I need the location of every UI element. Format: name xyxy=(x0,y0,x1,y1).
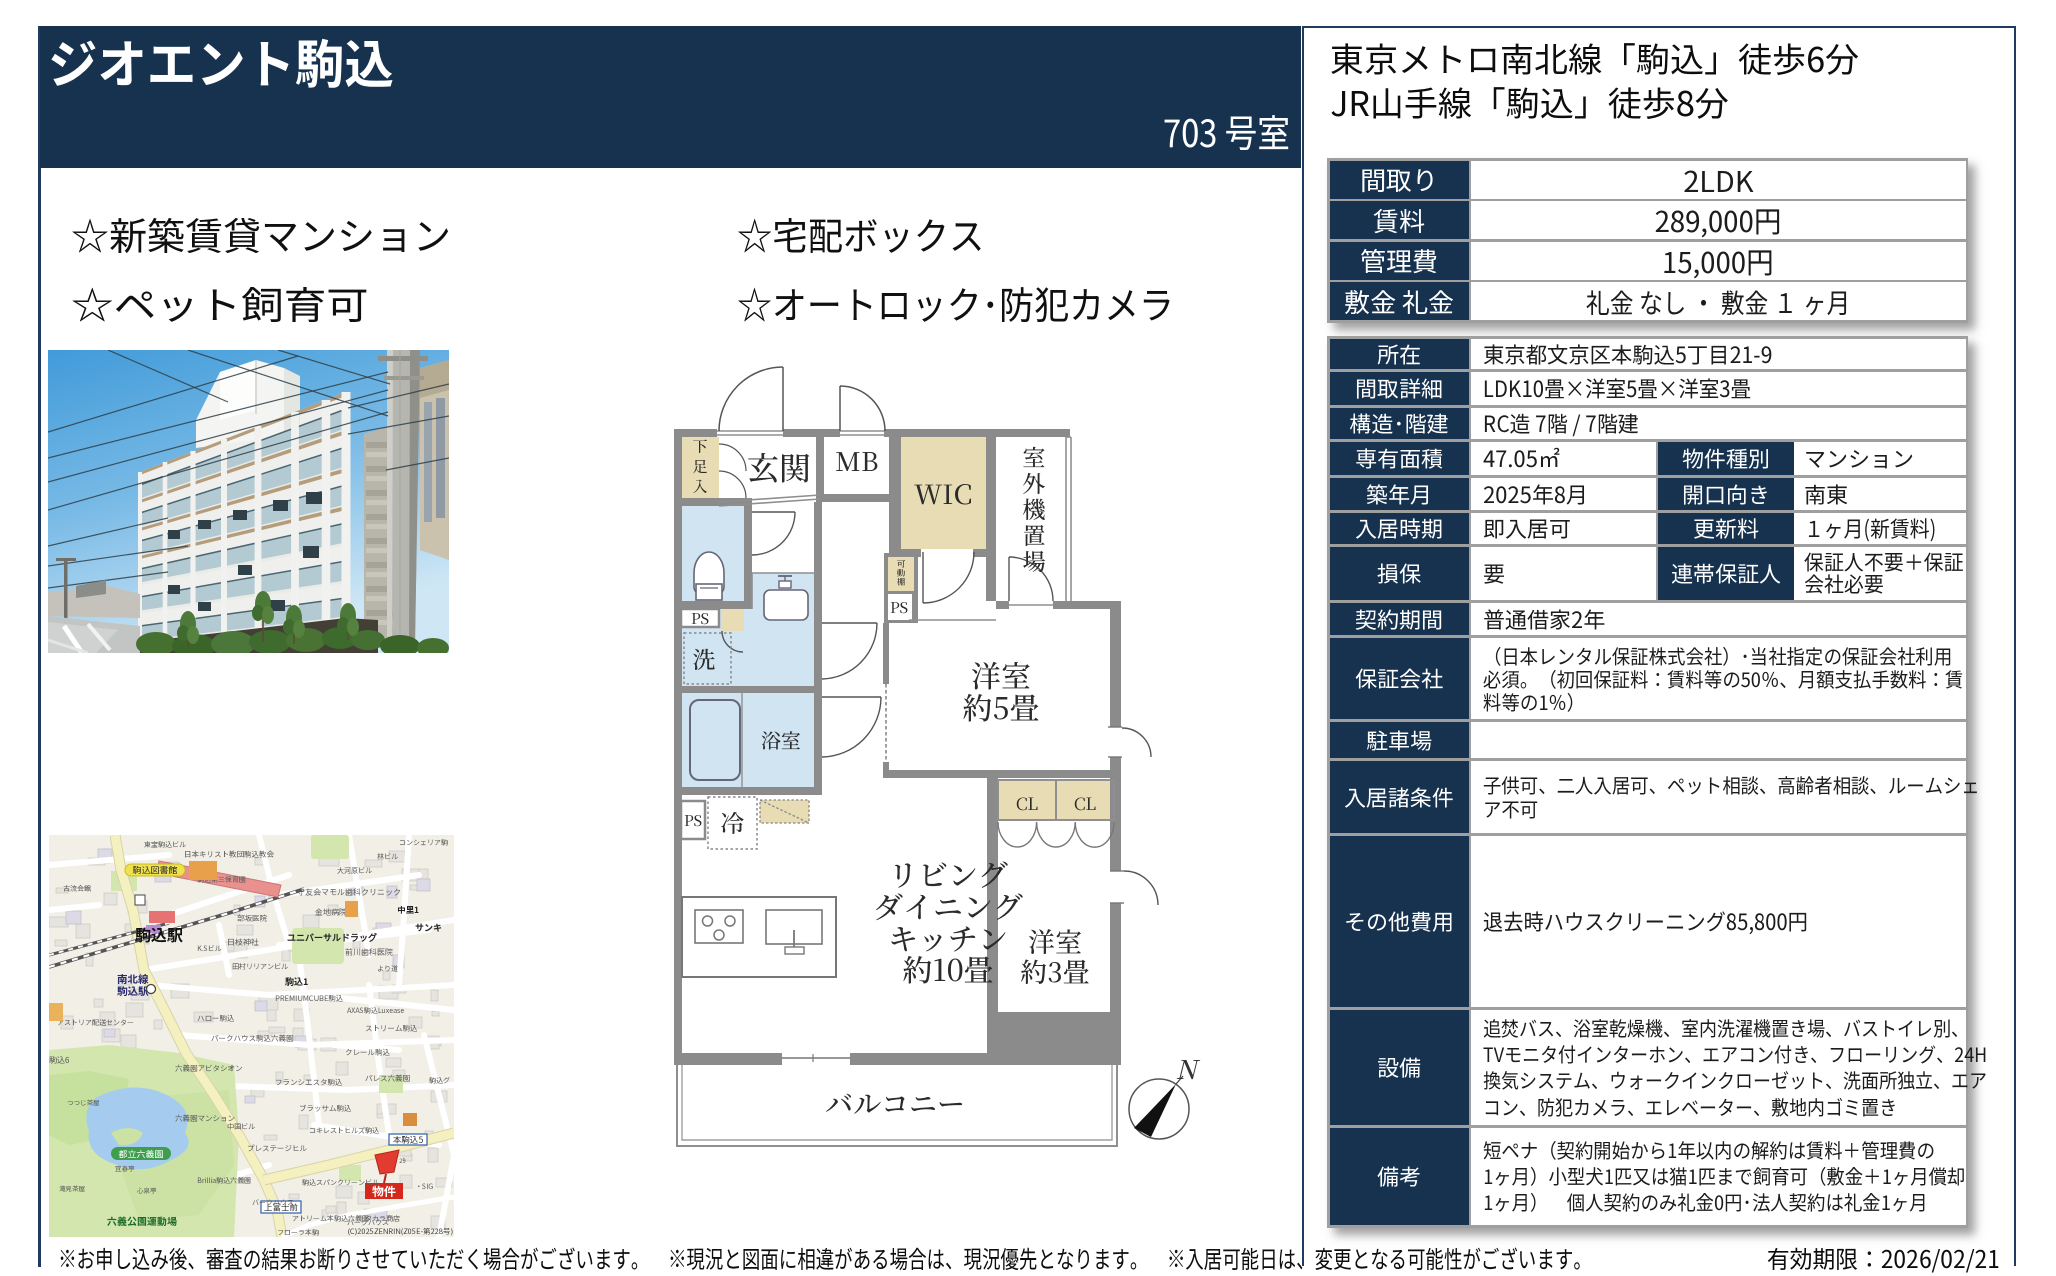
svg-text:ブラッサム駒込: ブラッサム駒込 xyxy=(299,1103,352,1114)
svg-text:コンシェリア駒: コンシェリア駒 xyxy=(399,838,448,848)
svg-text:パレス六義園: パレス六義園 xyxy=(365,1073,410,1084)
svg-text:駒込駅: 駒込駅 xyxy=(135,922,183,946)
svg-text:洗: 洗 xyxy=(693,642,716,675)
svg-text:大河原ビル: 大河原ビル xyxy=(337,866,372,876)
svg-text:ストリーム駒込: ストリーム駒込 xyxy=(365,1023,418,1034)
svg-text:コキレストヒルズ駒込: コキレストヒルズ駒込 xyxy=(309,1126,380,1136)
svg-text:フランシエスタ駒込: フランシエスタ駒込 xyxy=(275,1077,343,1088)
svg-text:駒込駅: 駒込駅 xyxy=(117,984,149,999)
svg-text:六義園アビタシオン: 六義園アビタシオン xyxy=(175,1063,243,1074)
svg-text:古流会館: 古流会館 xyxy=(63,884,91,894)
svg-text:下: 下 xyxy=(692,436,707,457)
svg-text:パークハウス駒込六義園: パークハウス駒込六義園 xyxy=(211,1033,294,1044)
svg-text:駒込グ: 駒込グ xyxy=(428,1076,450,1086)
svg-text:より道: より道 xyxy=(377,964,398,974)
svg-text:つつじ茶屋: つつじ茶屋 xyxy=(67,1097,100,1107)
svg-text:六義園マンション: 六義園マンション xyxy=(175,1113,235,1124)
svg-text:CL: CL xyxy=(1016,790,1039,815)
svg-text:クレール駒込: クレール駒込 xyxy=(345,1047,390,1058)
svg-text:田村リリアンビル: 田村リリアンビル xyxy=(232,962,288,972)
svg-text:守友会マモル歯科クリニック: 守友会マモル歯科クリニック xyxy=(297,887,401,898)
svg-text:足: 足 xyxy=(692,456,707,477)
svg-text:ユニバーサルドラッグ: ユニバーサルドラッグ xyxy=(287,931,377,944)
svg-text:駒込1: 駒込1 xyxy=(284,975,308,988)
svg-text:中里1: 中里1 xyxy=(397,904,419,916)
svg-text:29: 29 xyxy=(399,1156,406,1165)
svg-text:・SIG: ・SIG xyxy=(415,1182,433,1192)
svg-text:PS: PS xyxy=(890,597,909,618)
svg-text:駒込図書館: 駒込図書館 xyxy=(131,864,177,877)
svg-text:林ビル: 林ビル xyxy=(377,852,398,862)
svg-text:棚: 棚 xyxy=(897,576,906,588)
svg-text:PS: PS xyxy=(691,608,710,629)
svg-text:サンキ: サンキ xyxy=(415,921,442,934)
svg-text:部坂医院: 部坂医院 xyxy=(237,913,267,924)
svg-text:フローラ本駒: フローラ本駒 xyxy=(277,1228,319,1237)
svg-text:玄関: 玄関 xyxy=(747,444,811,490)
svg-text:タカラ商店: タカラ商店 xyxy=(365,1214,400,1224)
svg-text:金地病院: 金地病院 xyxy=(314,907,347,918)
svg-text:本駒込5: 本駒込5 xyxy=(393,1134,423,1146)
svg-text:浴室: 浴室 xyxy=(761,725,801,754)
svg-text:東宝駒込ビル: 東宝駒込ビル xyxy=(144,840,186,850)
svg-text:約5畳: 約5畳 xyxy=(962,684,1039,728)
svg-text:PS: PS xyxy=(684,810,703,831)
svg-text:冷: 冷 xyxy=(720,804,744,839)
svg-text:WIC: WIC xyxy=(914,473,973,512)
svg-text:駒込スパンクリーンビル: 駒込スパンクリーンビル xyxy=(301,1178,379,1188)
svg-text:滝見茶屋: 滝見茶屋 xyxy=(59,1183,86,1193)
svg-text:六義公園運動場: 六義公園運動場 xyxy=(106,1213,177,1228)
svg-text:Brillia駒込六義園: Brillia駒込六義園 xyxy=(197,1176,251,1186)
svg-text:CL: CL xyxy=(1074,790,1097,815)
svg-text:ハロー駒込: ハロー駒込 xyxy=(197,1013,235,1024)
svg-text:PREMIUMCUBE駒込: PREMIUMCUBE駒込 xyxy=(275,993,344,1004)
svg-text:バークハウス: バークハウス xyxy=(252,1198,294,1208)
svg-text:約3畳: 約3畳 xyxy=(1020,951,1089,990)
svg-text:日本キリスト教団駒込教会: 日本キリスト教団駒込教会 xyxy=(184,849,274,860)
svg-text:駒込6: 駒込6 xyxy=(49,1055,69,1066)
svg-text:場: 場 xyxy=(1023,544,1046,577)
svg-text:中国ビル: 中国ビル xyxy=(227,1122,255,1132)
svg-text:AXAS駒込Luxease: AXAS駒込Luxease xyxy=(347,1006,404,1016)
svg-text:アストリア配送センター: アストリア配送センター xyxy=(57,1018,134,1028)
svg-text:前川歯科医院: 前川歯科医院 xyxy=(345,947,393,958)
svg-text:MB: MB xyxy=(835,442,878,479)
svg-text:心泉亭: 心泉亭 xyxy=(137,1185,157,1195)
svg-text:(C)2025ZENRIN(Z05E-第228号): (C)2025ZENRIN(Z05E-第228号) xyxy=(347,1226,453,1237)
svg-text:日枝神社: 日枝神社 xyxy=(227,937,259,948)
svg-text:約10畳: 約10畳 xyxy=(902,946,993,990)
svg-text:宜春亭: 宜春亭 xyxy=(115,1163,135,1173)
svg-text:入: 入 xyxy=(692,476,707,497)
svg-text:バルコニー: バルコニー xyxy=(825,1083,965,1123)
svg-text:N: N xyxy=(1176,1050,1201,1087)
svg-text:プレステージヒル: プレステージヒル xyxy=(247,1143,307,1154)
svg-text:都立六義園: 都立六義園 xyxy=(118,1148,163,1161)
svg-text:K.Sビル: K.Sビル xyxy=(197,944,222,954)
